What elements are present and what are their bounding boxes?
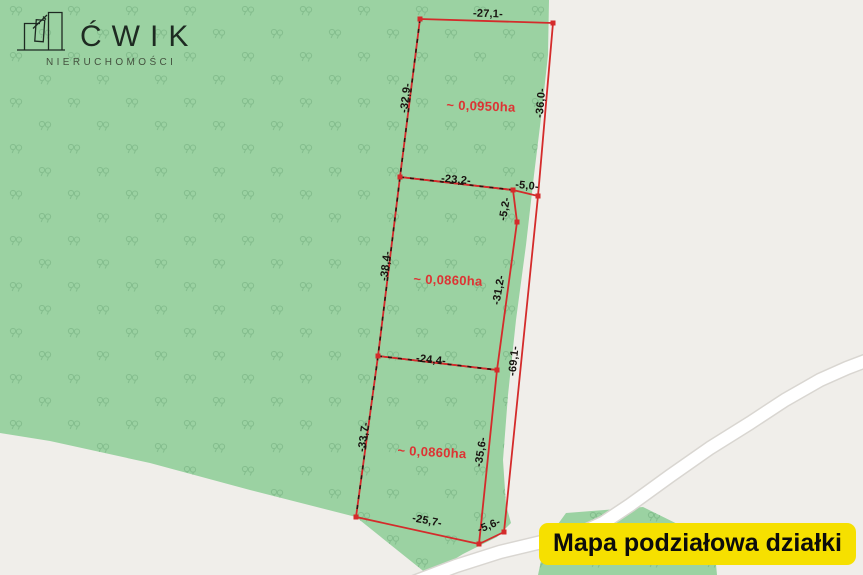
plot-division-map: -27,1- -32,9- -36,0- -23,2- -5,0- -5,2- … (0, 0, 863, 575)
map-canvas (0, 0, 863, 575)
connector-top-dimension: -5,0- (515, 179, 540, 193)
plot2-area-label: ~ 0,0860ha (413, 271, 483, 288)
plot1-top-dimension: -27,1- (473, 7, 503, 20)
brand-logo: ĆWIK NIERUCHOMOŚCI (16, 8, 198, 68)
map-caption-banner: Mapa podziałowa działki (539, 523, 856, 565)
brand-name: ĆWIK (80, 22, 198, 52)
plot2-top-dimension: -23,2- (441, 173, 472, 188)
plot1-area-label: ~ 0,0950ha (446, 97, 516, 114)
brand-subtitle: NIERUCHOMOŚCI (46, 57, 198, 68)
buildings-logo-icon (16, 8, 66, 54)
